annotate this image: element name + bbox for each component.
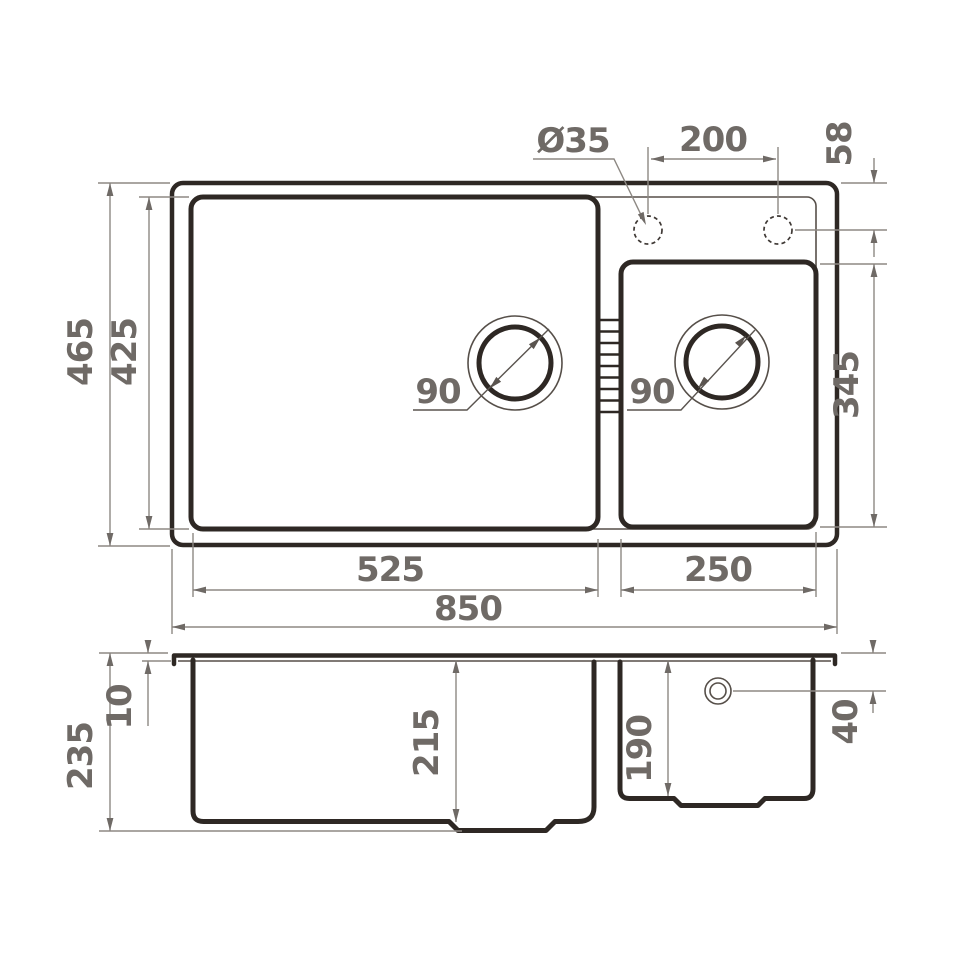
divider-ribs bbox=[600, 320, 620, 412]
dim-215-label: 215 bbox=[407, 709, 447, 777]
dia35-label: Ø35 bbox=[536, 121, 609, 161]
dim-850-label: 850 bbox=[434, 589, 502, 629]
dim-bowl2-width: 250 bbox=[621, 532, 816, 597]
dim-425-label: 425 bbox=[105, 318, 145, 386]
faucet-hole-2 bbox=[764, 216, 792, 244]
overflow-hole bbox=[705, 678, 731, 704]
dim-525-label: 525 bbox=[356, 550, 424, 590]
top-view bbox=[172, 183, 837, 545]
dim-250-label: 250 bbox=[684, 550, 752, 590]
section-view bbox=[174, 656, 835, 831]
dim-bowl2-depth: 190 bbox=[620, 660, 671, 796]
dim-345-label: 345 bbox=[827, 351, 867, 419]
dim-90-bowl2-label: 90 bbox=[629, 372, 675, 412]
dim-235-label: 235 bbox=[61, 722, 101, 790]
bowl1-outline bbox=[191, 197, 598, 529]
dim-hole-spacing: 200 bbox=[648, 120, 778, 214]
dim-90-bowl1-label: 90 bbox=[415, 372, 461, 412]
sink-outer-edge bbox=[172, 183, 837, 545]
dim-10-label: 10 bbox=[100, 684, 140, 730]
rim-profile bbox=[174, 656, 835, 665]
dim-bowl1-depth: 215 bbox=[407, 660, 459, 822]
dim-bowl2-length: 345 bbox=[820, 264, 887, 527]
dim-faucet-diameter: Ø35 bbox=[533, 121, 646, 225]
bowl1-profile bbox=[193, 660, 594, 831]
dim-190-label: 190 bbox=[620, 715, 660, 783]
dim-200-label: 200 bbox=[679, 120, 747, 160]
drawing-canvas: 465 425 Ø35 200 58 bbox=[0, 0, 960, 960]
dim-total-height: 235 bbox=[61, 653, 462, 831]
dim-465-label: 465 bbox=[61, 318, 101, 386]
dim-inner-depth: 425 bbox=[105, 197, 189, 529]
dim-bowl1-width: 525 bbox=[193, 533, 598, 597]
bowl2-drain bbox=[675, 315, 769, 409]
sink-technical-drawing: 465 425 Ø35 200 58 bbox=[0, 0, 960, 960]
dim-40-label: 40 bbox=[826, 699, 866, 745]
dim-58-label: 58 bbox=[820, 121, 860, 166]
faucet-hole-1 bbox=[634, 216, 662, 244]
dim-hole-offset: 58 bbox=[795, 121, 887, 257]
sink-deck-edge bbox=[191, 197, 816, 529]
